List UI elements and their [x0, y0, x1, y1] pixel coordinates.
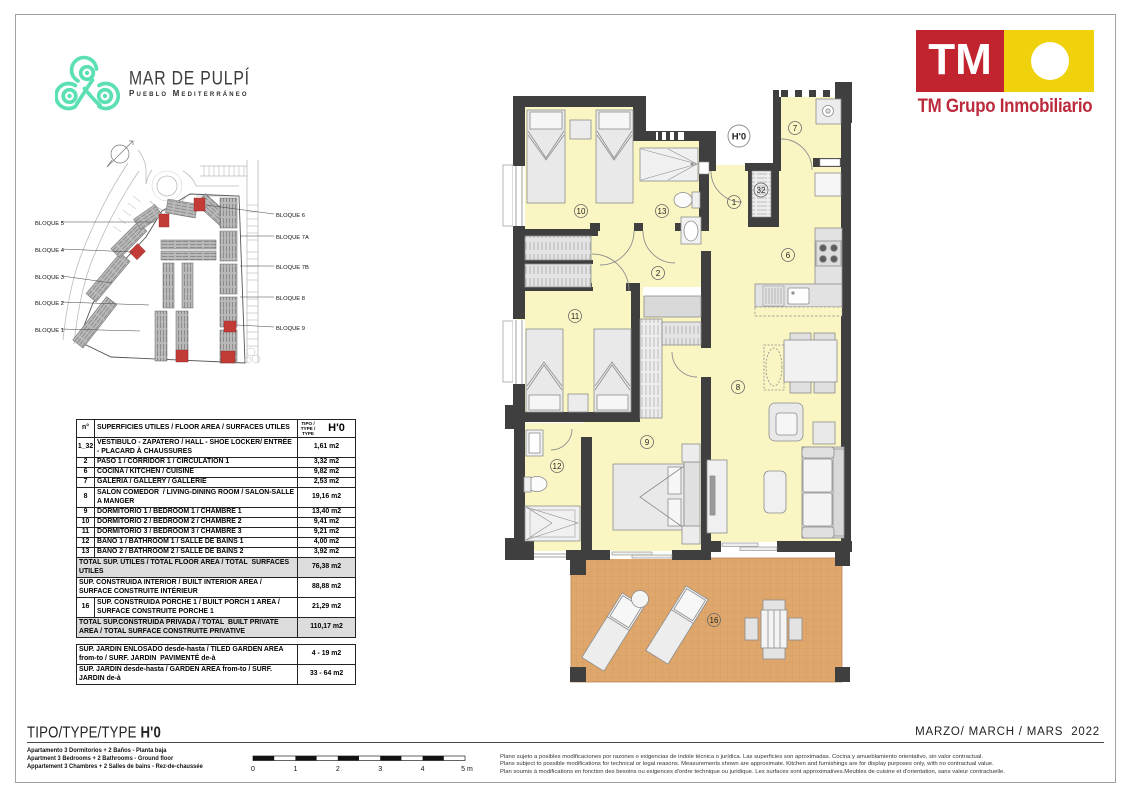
svg-text:8: 8: [736, 383, 741, 392]
svg-text:9: 9: [645, 438, 650, 447]
svg-text:16: 16: [710, 616, 719, 625]
svg-text:BLOQUE 2: BLOQUE 2: [35, 301, 64, 307]
svg-text:BLOQUE 7B: BLOQUE 7B: [276, 265, 309, 271]
svg-text:BLOQUE 5: BLOQUE 5: [35, 221, 64, 227]
svg-text:3: 3: [378, 766, 382, 773]
svg-text:BLOQUE 9: BLOQUE 9: [276, 326, 305, 332]
svg-text:BLOQUE 6: BLOQUE 6: [276, 213, 305, 219]
svg-text:1: 1: [293, 766, 297, 773]
svg-text:5 m: 5 m: [461, 766, 473, 773]
svg-text:0: 0: [251, 766, 255, 773]
svg-text:BLOQUE 1: BLOQUE 1: [35, 328, 64, 334]
svg-text:7: 7: [793, 124, 798, 133]
svg-text:2: 2: [336, 766, 340, 773]
svg-text:H'0: H'0: [732, 132, 746, 143]
svg-text:6: 6: [786, 251, 791, 260]
svg-text:1: 1: [732, 198, 737, 207]
svg-text:12: 12: [553, 462, 562, 471]
svg-text:BLOQUE 3: BLOQUE 3: [35, 275, 64, 281]
svg-text:4: 4: [421, 766, 425, 773]
svg-text:10: 10: [577, 207, 586, 216]
svg-text:2: 2: [656, 269, 661, 278]
svg-text:BLOQUE 8: BLOQUE 8: [276, 296, 305, 302]
svg-text:BLOQUE 4: BLOQUE 4: [35, 248, 65, 254]
svg-text:32: 32: [757, 186, 766, 195]
svg-text:11: 11: [571, 312, 580, 321]
svg-text:BLOQUE 7A: BLOQUE 7A: [276, 235, 309, 241]
svg-text:13: 13: [658, 207, 667, 216]
